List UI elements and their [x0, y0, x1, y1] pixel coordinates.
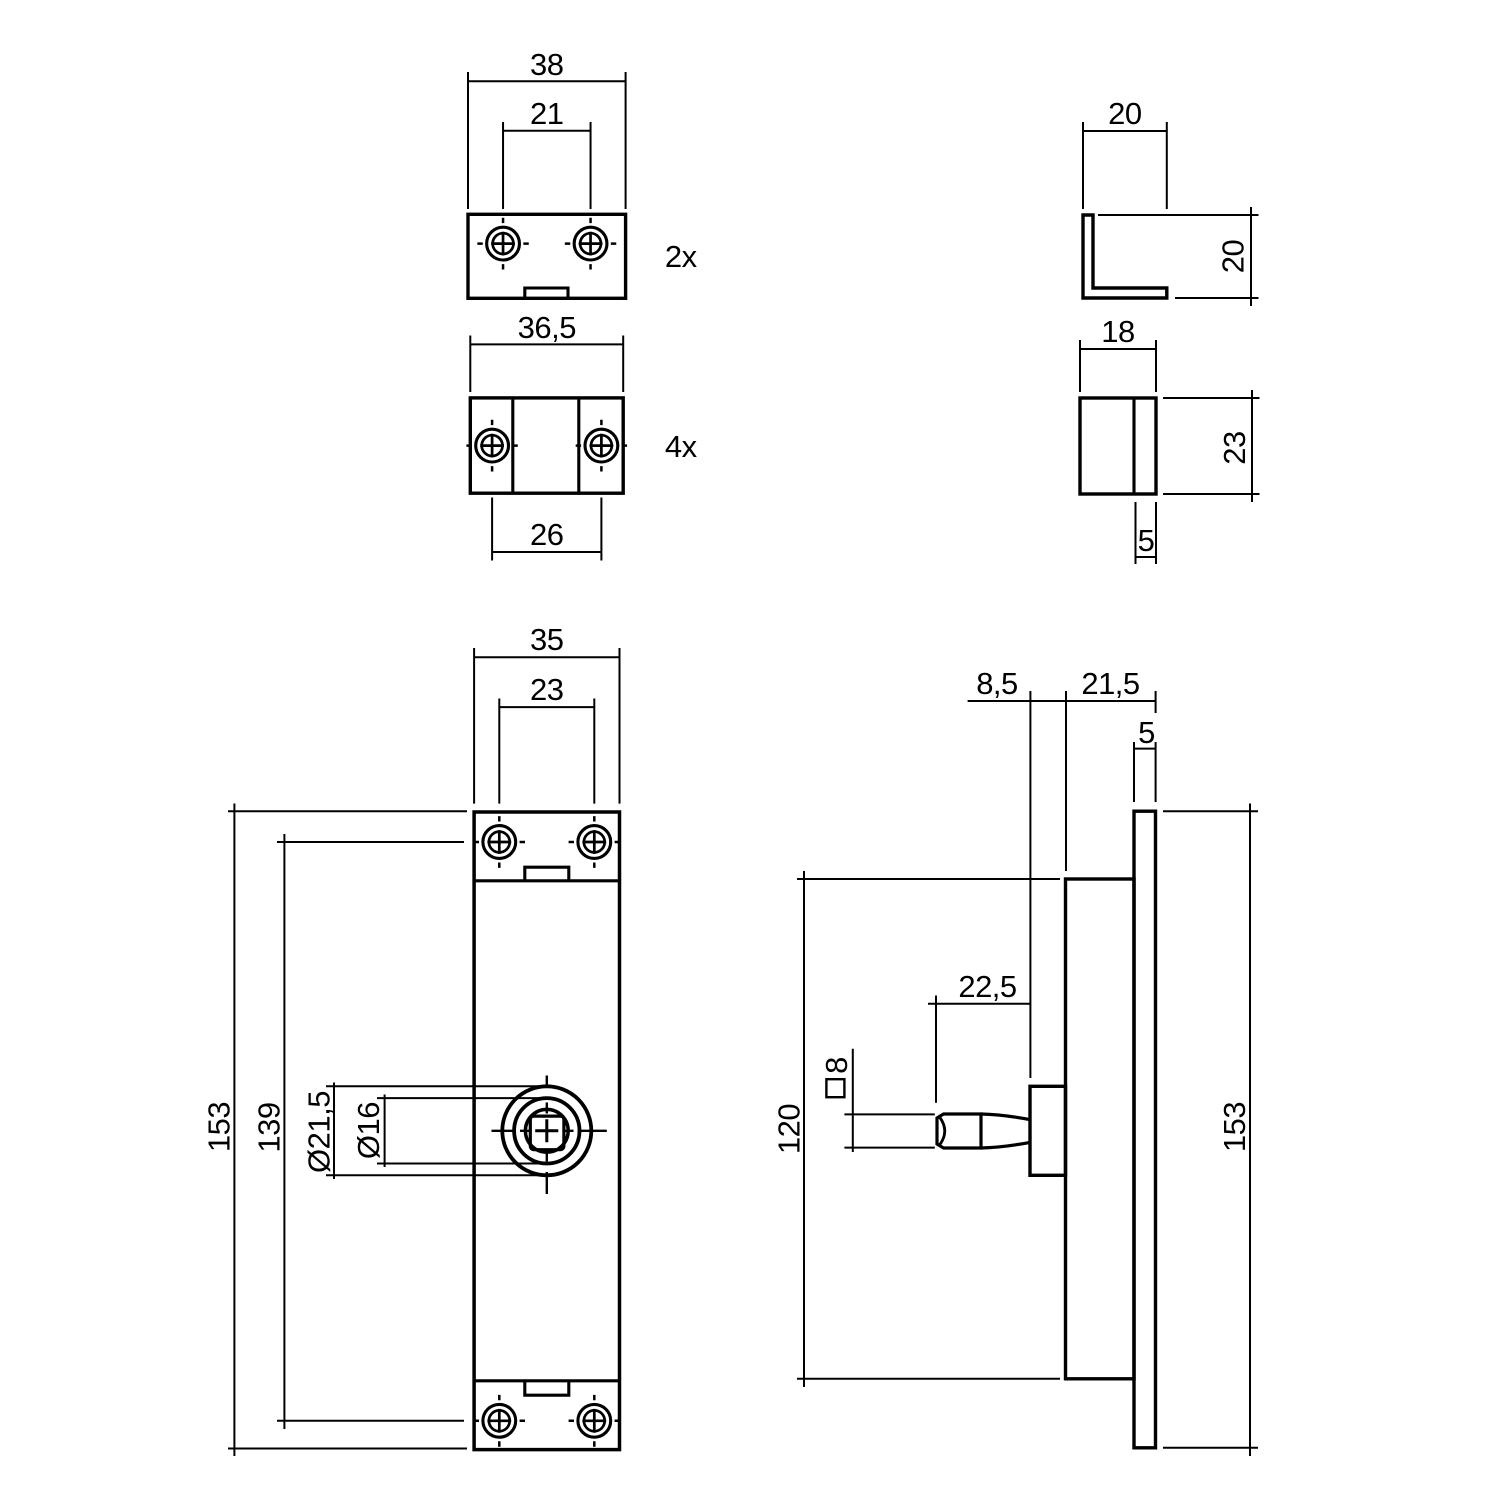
svg-text:22,5: 22,5	[958, 969, 1016, 1004]
svg-text:23: 23	[1217, 431, 1252, 464]
svg-text:38: 38	[530, 47, 563, 82]
svg-text:21,5: 21,5	[1081, 666, 1139, 701]
svg-text:8: 8	[819, 1057, 854, 1074]
svg-text:21: 21	[530, 96, 563, 131]
svg-text:23: 23	[530, 672, 563, 707]
svg-text:20: 20	[1108, 96, 1142, 131]
svg-text:153: 153	[1217, 1102, 1252, 1152]
svg-text:Ø21,5: Ø21,5	[302, 1091, 337, 1173]
svg-text:153: 153	[202, 1102, 237, 1152]
svg-text:8,5: 8,5	[976, 666, 1018, 701]
svg-text:Ø16: Ø16	[351, 1102, 386, 1159]
svg-text:35: 35	[530, 622, 563, 657]
svg-text:18: 18	[1101, 314, 1134, 349]
svg-text:5: 5	[1138, 715, 1155, 750]
svg-text:120: 120	[772, 1104, 807, 1154]
svg-text:36,5: 36,5	[518, 310, 576, 345]
svg-text:26: 26	[530, 517, 563, 552]
svg-text:2x: 2x	[665, 239, 698, 274]
svg-text:4x: 4x	[665, 429, 698, 464]
svg-text:20: 20	[1216, 240, 1251, 274]
svg-text:139: 139	[252, 1102, 287, 1152]
svg-text:5: 5	[1138, 523, 1155, 558]
